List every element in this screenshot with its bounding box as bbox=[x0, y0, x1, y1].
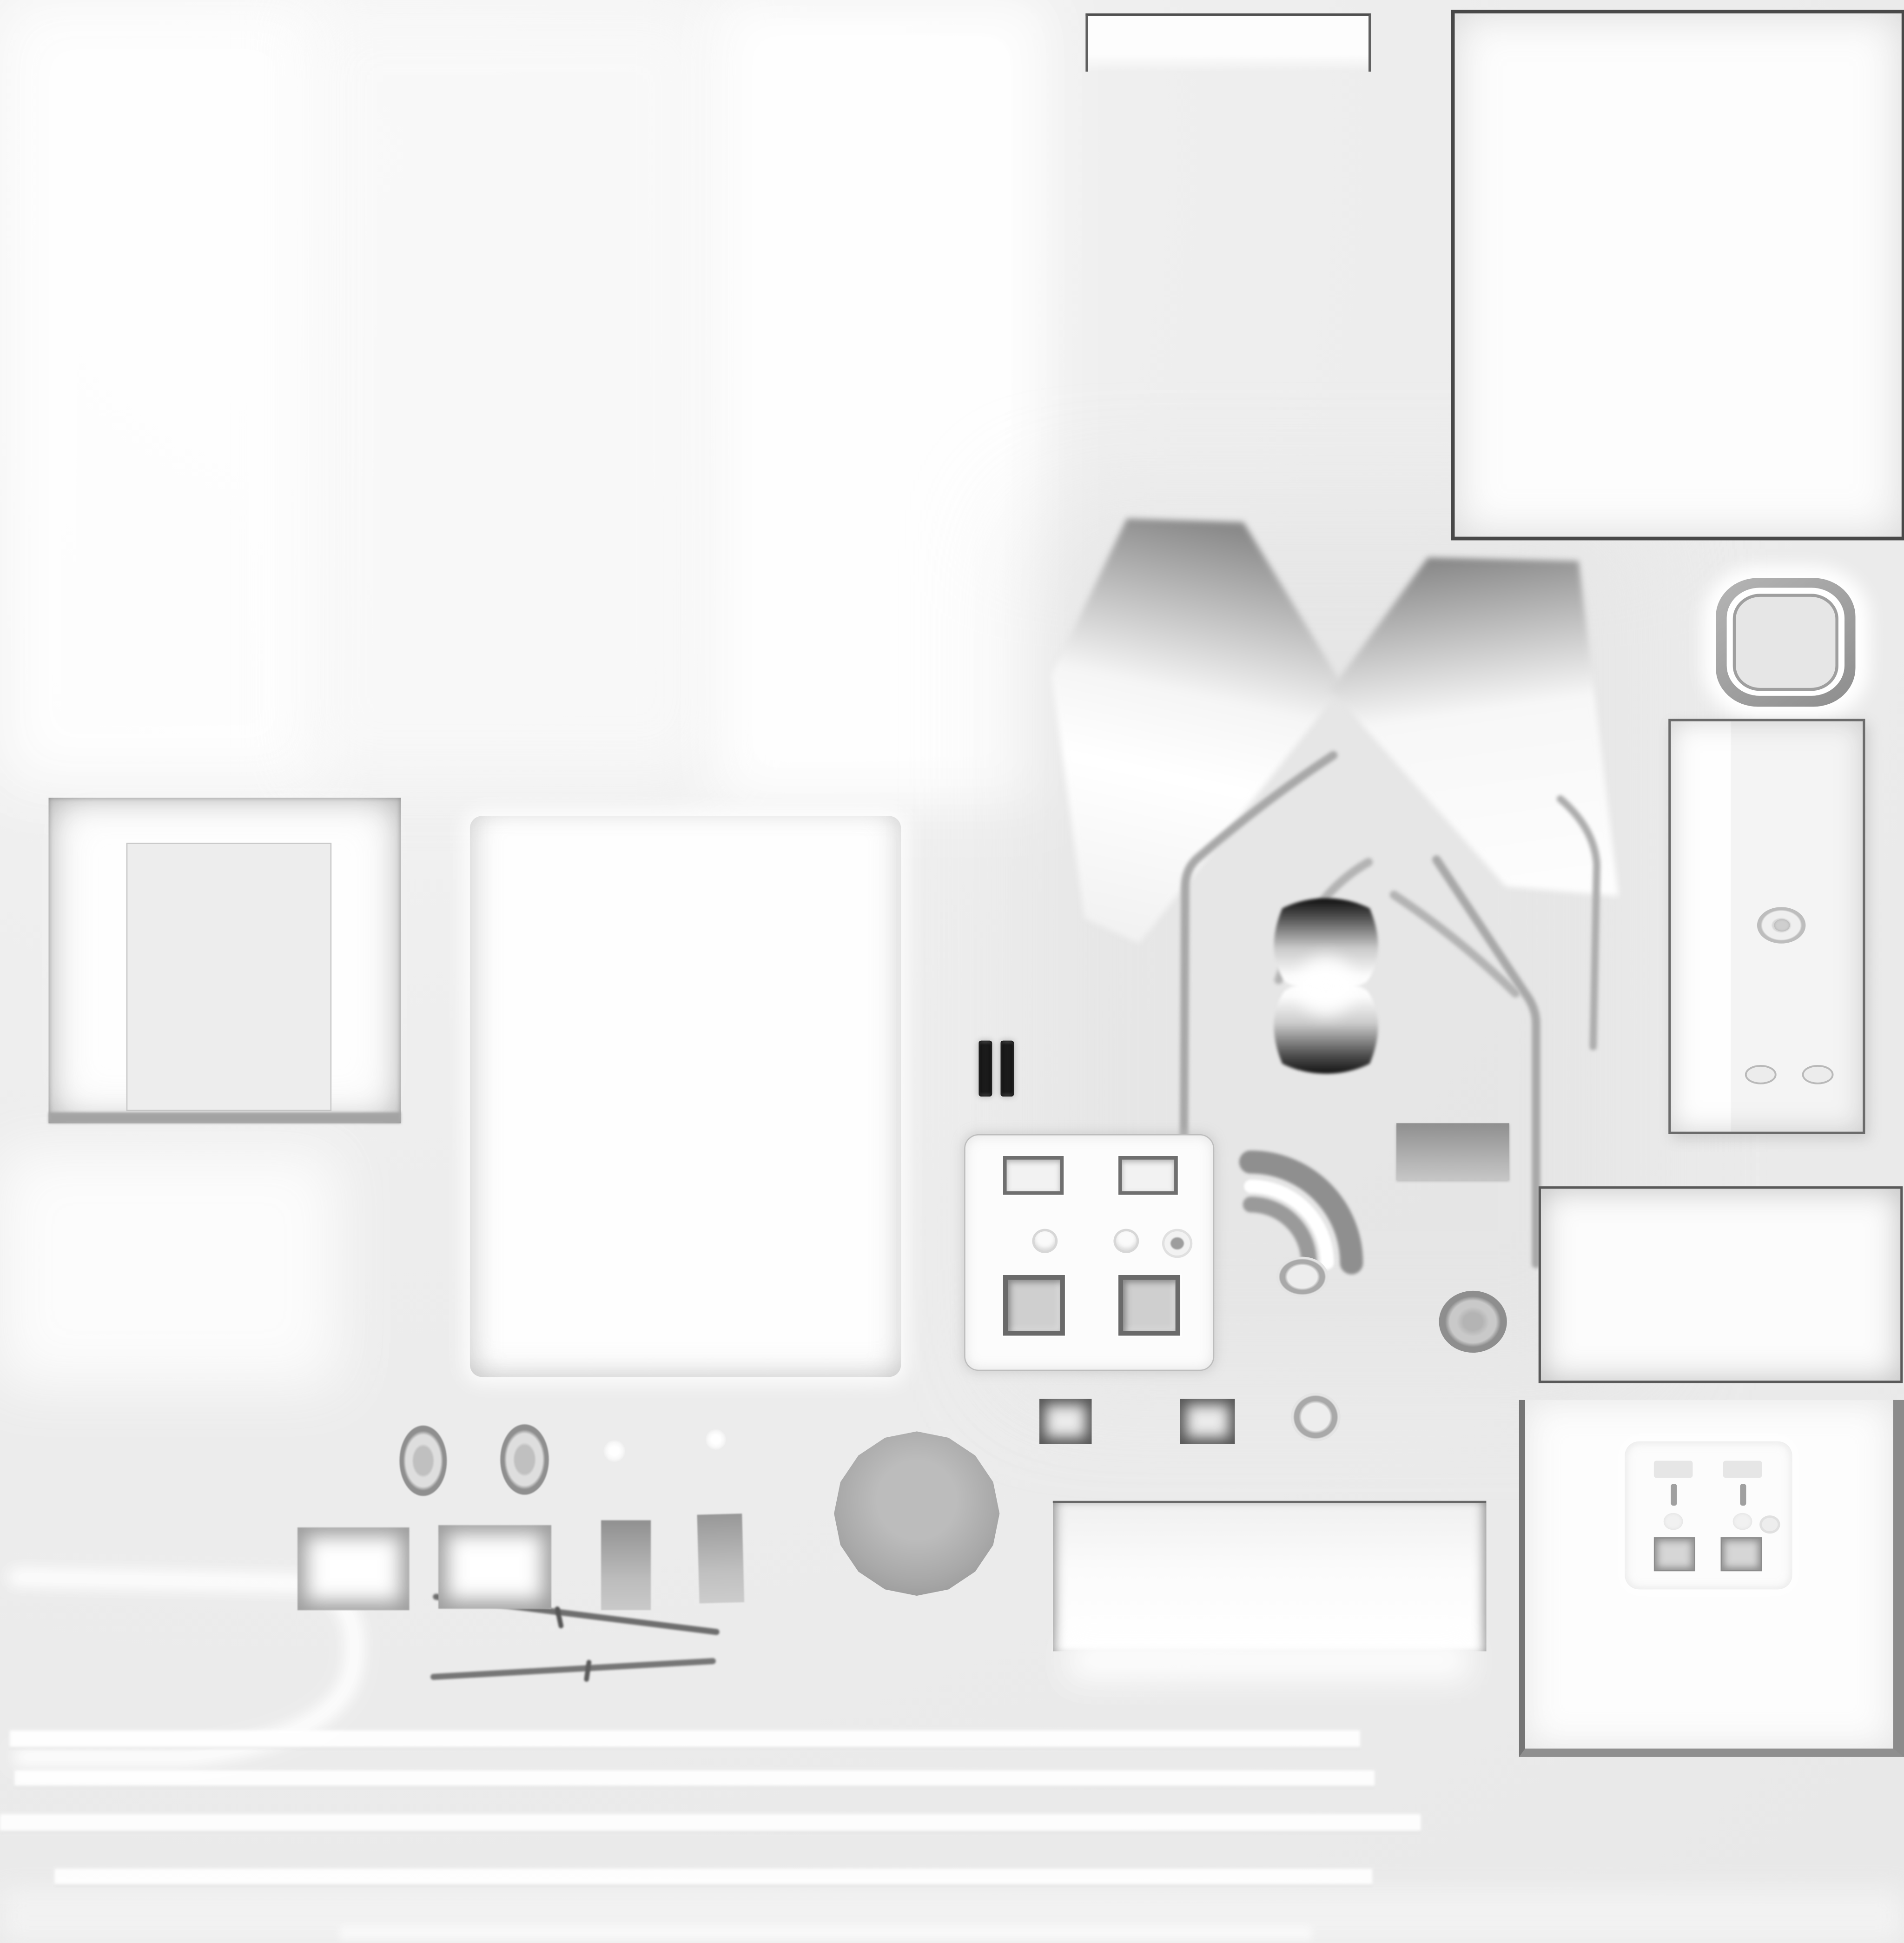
bottom-bar-4 bbox=[55, 1869, 1372, 1886]
slot-groove-left bbox=[978, 1041, 992, 1097]
left-square-bottom-strip bbox=[48, 1112, 401, 1124]
small-dark-rect-right bbox=[1180, 1399, 1235, 1444]
socket-plate-rect-left bbox=[1654, 1461, 1693, 1478]
right-tall-rect-foot-left bbox=[1745, 1065, 1777, 1084]
socket-plate-slot-right bbox=[1740, 1484, 1746, 1506]
gray-tab-left bbox=[601, 1520, 651, 1610]
control-panel-square-right bbox=[1118, 1275, 1180, 1336]
bottom-bar-2 bbox=[14, 1771, 1375, 1788]
control-panel-square-left bbox=[1003, 1275, 1065, 1336]
control-panel-circle-3-dot bbox=[1170, 1237, 1184, 1249]
socket-plate-hole-left bbox=[1654, 1537, 1695, 1571]
white-glow-rect-right bbox=[438, 1525, 551, 1609]
bottom-bar-3 bbox=[0, 1814, 1421, 1832]
top-slot-rect bbox=[1085, 13, 1371, 72]
bright-dot-left bbox=[603, 1440, 625, 1462]
polygon-disc bbox=[831, 1428, 1003, 1599]
socket-plate-slot-left bbox=[1671, 1484, 1677, 1506]
mid-right-rect bbox=[1539, 1186, 1903, 1383]
socket-plate-circle-far bbox=[1759, 1515, 1780, 1533]
right-tall-rect-dot bbox=[1774, 919, 1790, 931]
lens-ring-bottom bbox=[1291, 1393, 1341, 1441]
grommet-left bbox=[399, 1426, 447, 1496]
socket-plate-rect-right bbox=[1723, 1461, 1762, 1478]
foreground-layer bbox=[0, 0, 1904, 1904]
bottom-bar-1 bbox=[10, 1730, 1360, 1748]
control-panel-rect-left bbox=[1003, 1156, 1064, 1195]
bottom-center-rect bbox=[1053, 1501, 1487, 1652]
right-tall-rect-foot-right bbox=[1802, 1065, 1834, 1084]
grommet-right bbox=[500, 1424, 549, 1495]
socket-plate-circle-left bbox=[1664, 1513, 1683, 1530]
control-panel-circle-1 bbox=[1035, 1231, 1055, 1251]
gray-tab-right bbox=[697, 1513, 745, 1603]
control-panel-rect-right bbox=[1118, 1156, 1178, 1195]
socket-plate-hole-right bbox=[1721, 1537, 1762, 1571]
bottom-bar-5 bbox=[340, 1926, 1311, 1940]
small-dark-rect-left bbox=[1039, 1399, 1091, 1444]
bright-dot-right bbox=[706, 1429, 726, 1450]
bottom-center-rect-glow bbox=[1069, 1639, 1469, 1681]
texture-atlas-stage bbox=[0, 0, 1904, 1904]
gray-gradient-rect bbox=[1396, 1123, 1509, 1180]
white-glow-rect-left bbox=[297, 1527, 409, 1610]
donut-ring bbox=[1439, 1291, 1507, 1353]
control-panel-circle-2 bbox=[1116, 1231, 1137, 1251]
left-square-inner bbox=[126, 843, 331, 1111]
topright-square bbox=[1451, 10, 1904, 541]
lens-ring-top bbox=[1276, 1257, 1328, 1297]
slot-groove-right bbox=[1000, 1041, 1014, 1097]
socket-plate-circle-right bbox=[1733, 1513, 1752, 1530]
squircle-inner bbox=[1733, 594, 1838, 691]
centerleft-big-rect bbox=[470, 816, 901, 1377]
